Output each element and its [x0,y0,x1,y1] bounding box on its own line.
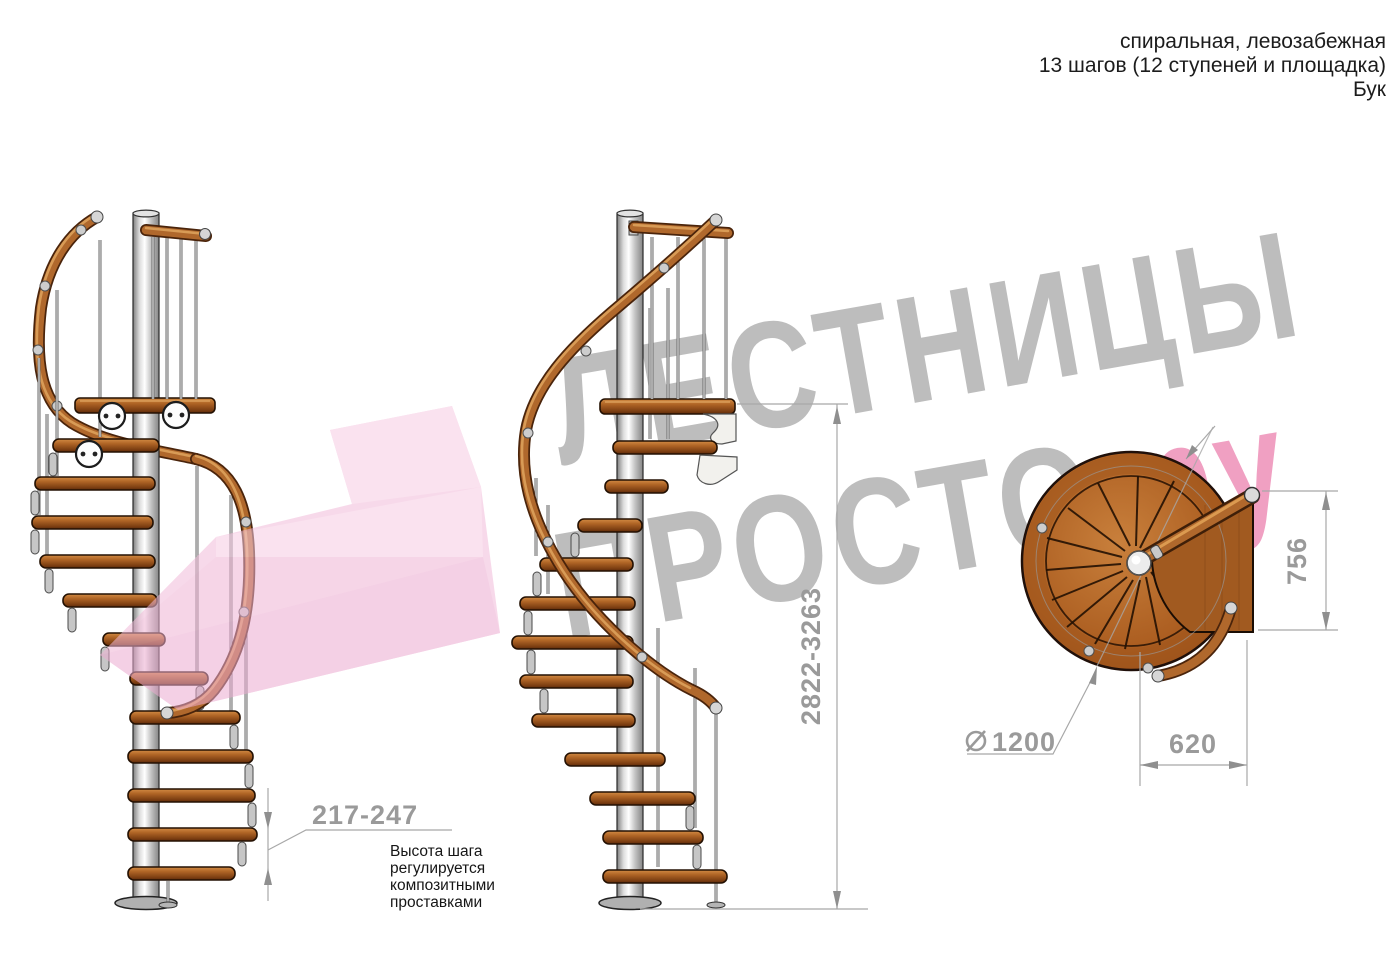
rail-end-cap [91,211,103,223]
step-height-value: 217-247 [312,800,418,830]
landing-width-value: 620 [1169,729,1217,759]
step [35,477,155,490]
plan-center-pole [1127,551,1151,575]
note-line: проставками [390,894,495,911]
top-plan-view [1022,427,1260,682]
title-line-material: Бук [1039,78,1386,102]
step [565,753,665,766]
step [130,672,208,685]
step-height-note: Высота шага регулируется композитными пр… [390,843,495,911]
step [603,831,703,844]
drawing-page: ЛЕСТНИЦЫ ПРОСТО.ру [0,0,1400,961]
pole-base-flange [599,897,661,910]
title-block: спиральная, левозабежная 13 шагов (12 ст… [1039,30,1386,102]
step [128,867,235,880]
step [605,480,668,493]
diameter-value: 1200 [992,727,1056,757]
note-line: регулируется [390,860,495,877]
step [63,594,157,607]
step [532,714,635,727]
dimension-landing-depth: 756 [1258,491,1338,630]
front-step-spacers [524,533,701,869]
landing-depth-value: 756 [1282,537,1312,585]
rail-end-cap [710,702,722,714]
total-height-value: 2822-3263 [796,587,826,725]
step-bracket [697,455,737,484]
note-line: композитными [390,877,495,894]
rail-end-cap [710,214,722,226]
step [578,519,642,532]
step [128,789,255,802]
left-top-platform [75,398,215,413]
step [520,675,633,688]
front-elevation-view [512,210,868,909]
dimension-total-height: 2822-3263 [737,404,848,909]
platform-bracket [703,414,736,444]
step [40,555,155,568]
step [103,633,165,646]
step [32,516,153,529]
step [590,792,695,805]
step [613,441,717,454]
diameter-symbol-icon [967,731,985,751]
rail-end-cap [161,707,173,719]
staircase-technical-drawing: 2822-3263 217-247 1200 756 [0,0,1400,961]
left-elevation-view [31,210,257,909]
title-line-steps: 13 шагов (12 ступеней и площадка) [1039,54,1386,78]
step [128,750,253,763]
title-line-type: спиральная, левозабежная [1039,30,1386,54]
step [53,439,159,452]
note-line: Высота шага [390,843,495,860]
step [603,870,727,883]
rail-end-cap [200,229,211,240]
step [128,828,257,841]
